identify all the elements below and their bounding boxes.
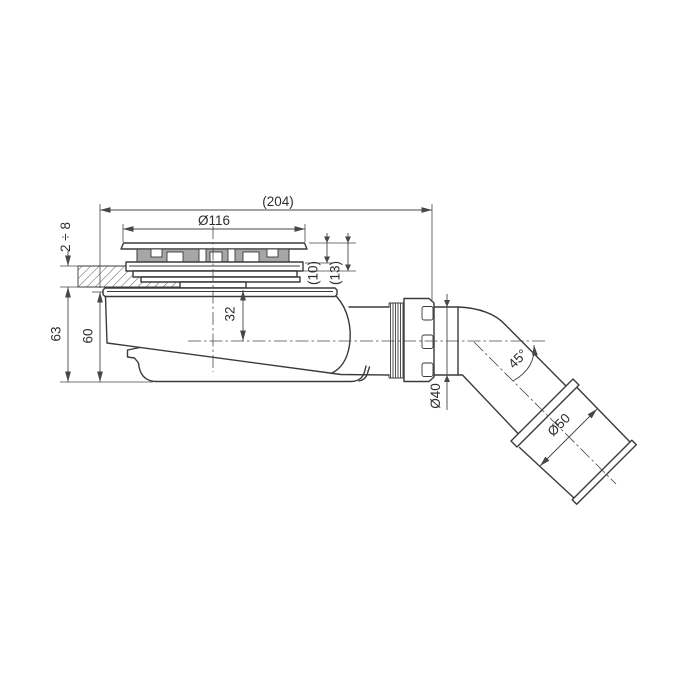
dim-axis-depth-32: 32 xyxy=(223,290,244,341)
dim-label-depth-63: 63 xyxy=(49,326,64,341)
dim-tray-thickness: 2 ÷ 8 xyxy=(58,222,73,266)
dim-label-tray-thickness: 2 ÷ 8 xyxy=(58,222,73,252)
dim-height-13: (13) xyxy=(328,233,352,285)
outlet-thread xyxy=(389,303,404,378)
trap-body xyxy=(103,288,389,382)
body-flange xyxy=(103,288,337,297)
dim-label-angle-45: 45° xyxy=(505,346,530,371)
dim-label-overall-width: (204) xyxy=(262,194,294,209)
body-end-cap xyxy=(331,297,350,374)
dim-label-depth-60: 60 xyxy=(81,328,96,343)
dim-overall-width: (204) xyxy=(100,194,432,210)
cover-plate xyxy=(121,243,307,249)
dim-depth-60: 60 xyxy=(81,292,101,382)
drain-grate-cover xyxy=(121,243,307,263)
dim-label-height-13: (13) xyxy=(328,261,343,285)
dim-grate-diameter: Ø116 xyxy=(123,213,305,229)
dim-label-pipe-40: Ø40 xyxy=(428,383,443,409)
compression-nut xyxy=(404,299,434,382)
dim-height-10: (10) xyxy=(306,233,331,285)
dim-depth-63: 63 xyxy=(49,287,69,382)
dim-label-height-10: (10) xyxy=(306,261,321,285)
technical-drawing-page: (204) Ø116 (10) (13) 2 ÷ 8 63 60 32 Ø40 xyxy=(0,0,700,700)
dim-label-axis-depth: 32 xyxy=(223,306,238,321)
dim-label-grate-diameter: Ø116 xyxy=(198,213,230,228)
trap-sump xyxy=(128,348,367,382)
dim-socket-50: Ø50 xyxy=(540,409,597,466)
technical-drawing: (204) Ø116 (10) (13) 2 ÷ 8 63 60 32 Ø40 xyxy=(0,0,700,700)
